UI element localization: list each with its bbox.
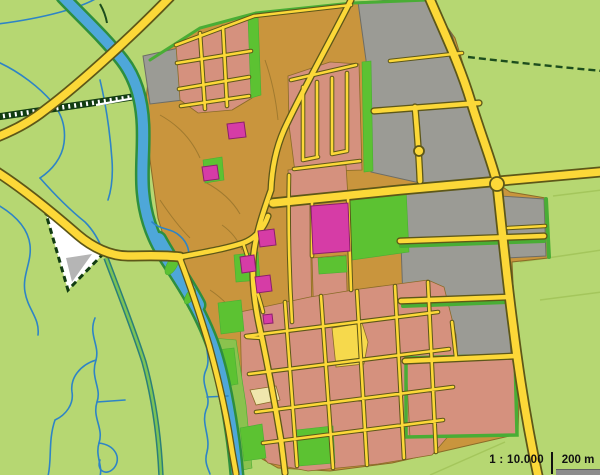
scale-bar-tick	[551, 452, 553, 474]
roundabout-east	[490, 177, 504, 191]
scale-ratio-text: 1 : 10.000	[468, 454, 544, 466]
roundabout-northeast	[414, 146, 424, 156]
map-viewport[interactable]: 1 : 10.000 200 m	[0, 0, 600, 475]
scale-bar-label: 200 m	[556, 454, 600, 466]
map-canvas	[0, 0, 600, 475]
scale-bar	[556, 469, 600, 475]
